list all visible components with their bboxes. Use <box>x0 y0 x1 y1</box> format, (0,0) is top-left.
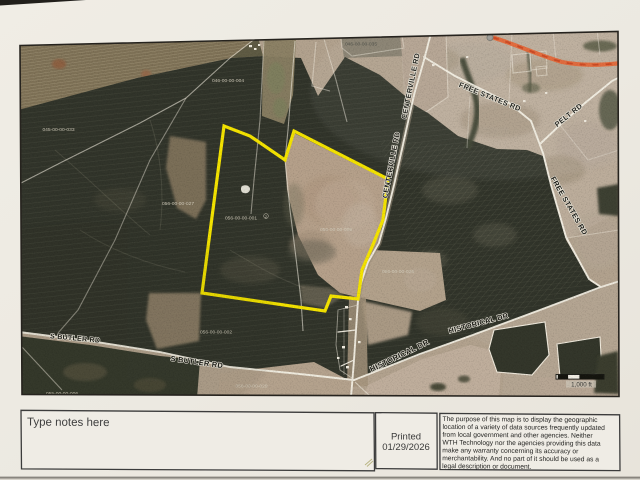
svg-text:Printed: Printed <box>391 432 421 443</box>
svg-text:from local government and othe: from local government and other agencies… <box>442 432 593 440</box>
svg-text:legal description or document.: legal description or document. <box>442 463 531 471</box>
svg-text:The purpose of this map is to: The purpose of this map is to display th… <box>442 416 598 424</box>
svg-text:Type notes here: Type notes here <box>27 417 110 430</box>
svg-text:01/29/2026: 01/29/2026 <box>382 442 430 453</box>
svg-text:location of a variety of data: location of a variety of data sources fr… <box>442 424 605 432</box>
svg-text:WTH Technology nor the agencie: WTH Technology nor the agencies providin… <box>442 440 601 448</box>
svg-text:merchantability. And no part o: merchantability. And no part of it shoul… <box>442 455 599 463</box>
svg-text:make any warranty concerning i: make any warranty concerning its accurac… <box>442 447 579 455</box>
